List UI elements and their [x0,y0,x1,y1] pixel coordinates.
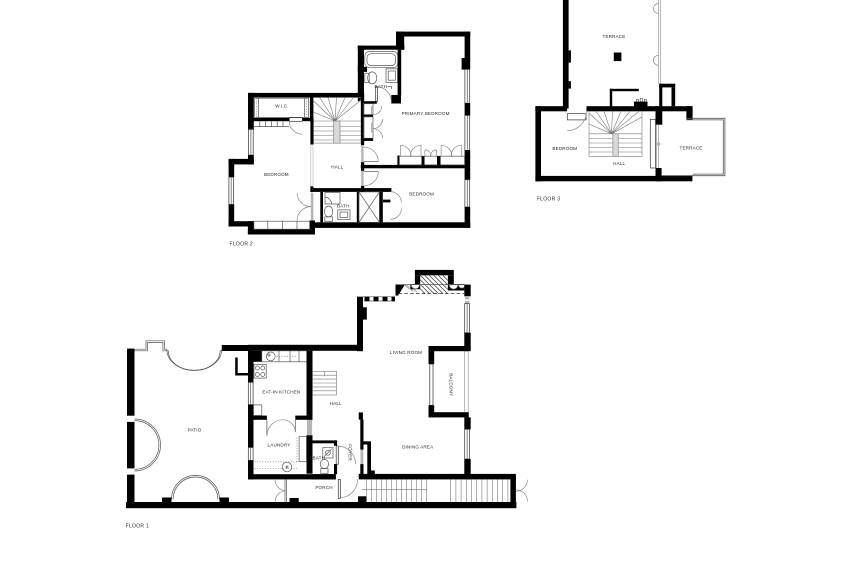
svg-text:BEDROOM: BEDROOM [409,192,434,197]
svg-text:BATH: BATH [337,203,350,208]
svg-text:BALCONY: BALCONY [449,373,454,396]
svg-text:BATH: BATH [313,455,326,460]
svg-text:FLOOR 2: FLOOR 2 [230,242,254,248]
svg-text:HALL: HALL [613,161,625,166]
svg-text:PORCH: PORCH [315,485,332,490]
svg-text:TERRACE: TERRACE [602,34,625,39]
svg-text:BEDROOM: BEDROOM [264,172,289,177]
svg-text:BEDROOM: BEDROOM [552,146,577,151]
svg-text:PRIMARY BEDROOM: PRIMARY BEDROOM [402,111,450,116]
svg-text:FLOOR 1: FLOOR 1 [126,523,150,529]
svg-text:LIVING ROOM: LIVING ROOM [390,350,422,355]
svg-text:FOYER: FOYER [347,444,352,461]
svg-text:W.I.C.: W.I.C. [275,103,288,108]
svg-text:FLOOR 3: FLOOR 3 [537,197,561,203]
svg-text:HALL: HALL [330,401,342,406]
svg-text:HALL: HALL [331,164,343,169]
svg-text:LAUNDRY: LAUNDRY [268,443,291,448]
svg-text:TERRACE: TERRACE [679,145,702,150]
svg-text:BATH: BATH [375,84,388,89]
svg-text:PATIO: PATIO [188,427,202,432]
svg-text:DINING AREA: DINING AREA [402,444,434,449]
svg-text:EAT-IN KITCHEN: EAT-IN KITCHEN [262,390,300,395]
